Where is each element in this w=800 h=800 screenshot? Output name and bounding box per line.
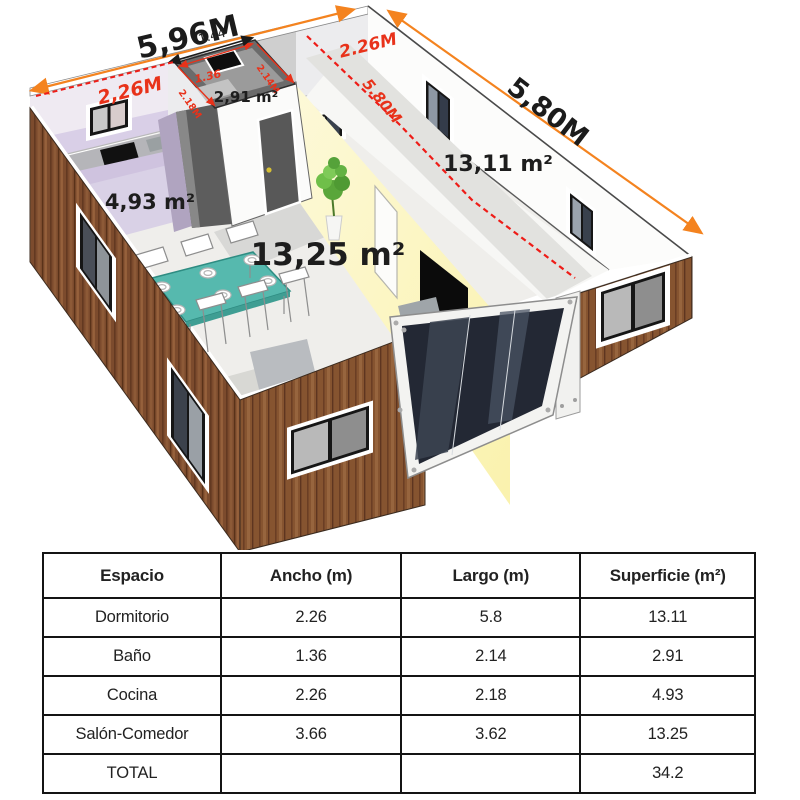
cell-espacio: Baño: [43, 637, 221, 676]
cell-ancho: 3.66: [221, 715, 401, 754]
label-living-area: 13,25 m²: [251, 237, 406, 273]
dimensions-table: Espacio Ancho (m) Largo (m) Superficie (…: [42, 552, 756, 794]
table-row: Cocina 2.26 2.18 4.93: [43, 676, 755, 715]
cell-largo: 3.62: [401, 715, 580, 754]
cell-ancho: 2.26: [221, 676, 401, 715]
cell-ancho: 1.36: [221, 637, 401, 676]
cell-largo: 2.18: [401, 676, 580, 715]
floor-plan-3d: 5,96M 2,26M 1.44 1.36 2.14M 2.18M 2,91 m…: [0, 0, 800, 550]
bathroom-door: [258, 110, 300, 214]
table-row: Salón-Comedor 3.66 3.62 13.25: [43, 715, 755, 754]
cell-superficie: 34.2: [580, 754, 755, 793]
floor-plan-page: 5,96M 2,26M 1.44 1.36 2.14M 2.18M 2,91 m…: [0, 0, 800, 800]
table-row: Dormitorio 2.26 5.8 13.11: [43, 598, 755, 637]
cell-espacio: Dormitorio: [43, 598, 221, 637]
cell-largo: 2.14: [401, 637, 580, 676]
cell-espacio: TOTAL: [43, 754, 221, 793]
cell-espacio: Salón-Comedor: [43, 715, 221, 754]
cell-espacio: Cocina: [43, 676, 221, 715]
cell-largo: [401, 754, 580, 793]
table-row: Baño 1.36 2.14 2.91: [43, 637, 755, 676]
col-header-espacio: Espacio: [43, 553, 221, 598]
col-header-superficie: Superficie (m²): [580, 553, 755, 598]
cell-superficie: 2.91: [580, 637, 755, 676]
col-header-ancho: Ancho (m): [221, 553, 401, 598]
table-row-total: TOTAL 34.2: [43, 754, 755, 793]
cell-largo: 5.8: [401, 598, 580, 637]
cell-superficie: 4.93: [580, 676, 755, 715]
col-header-largo: Largo (m): [401, 553, 580, 598]
table-header-row: Espacio Ancho (m) Largo (m) Superficie (…: [43, 553, 755, 598]
label-kitchen-area: 4,93 m²: [105, 190, 195, 214]
label-bath-area: 2,91 m²: [214, 88, 278, 106]
label-bedroom-area: 13,11 m²: [443, 152, 553, 177]
cell-superficie: 13.25: [580, 715, 755, 754]
cell-ancho: 2.26: [221, 598, 401, 637]
cell-superficie: 13.11: [580, 598, 755, 637]
cell-ancho: [221, 754, 401, 793]
door-knob: [266, 167, 271, 172]
